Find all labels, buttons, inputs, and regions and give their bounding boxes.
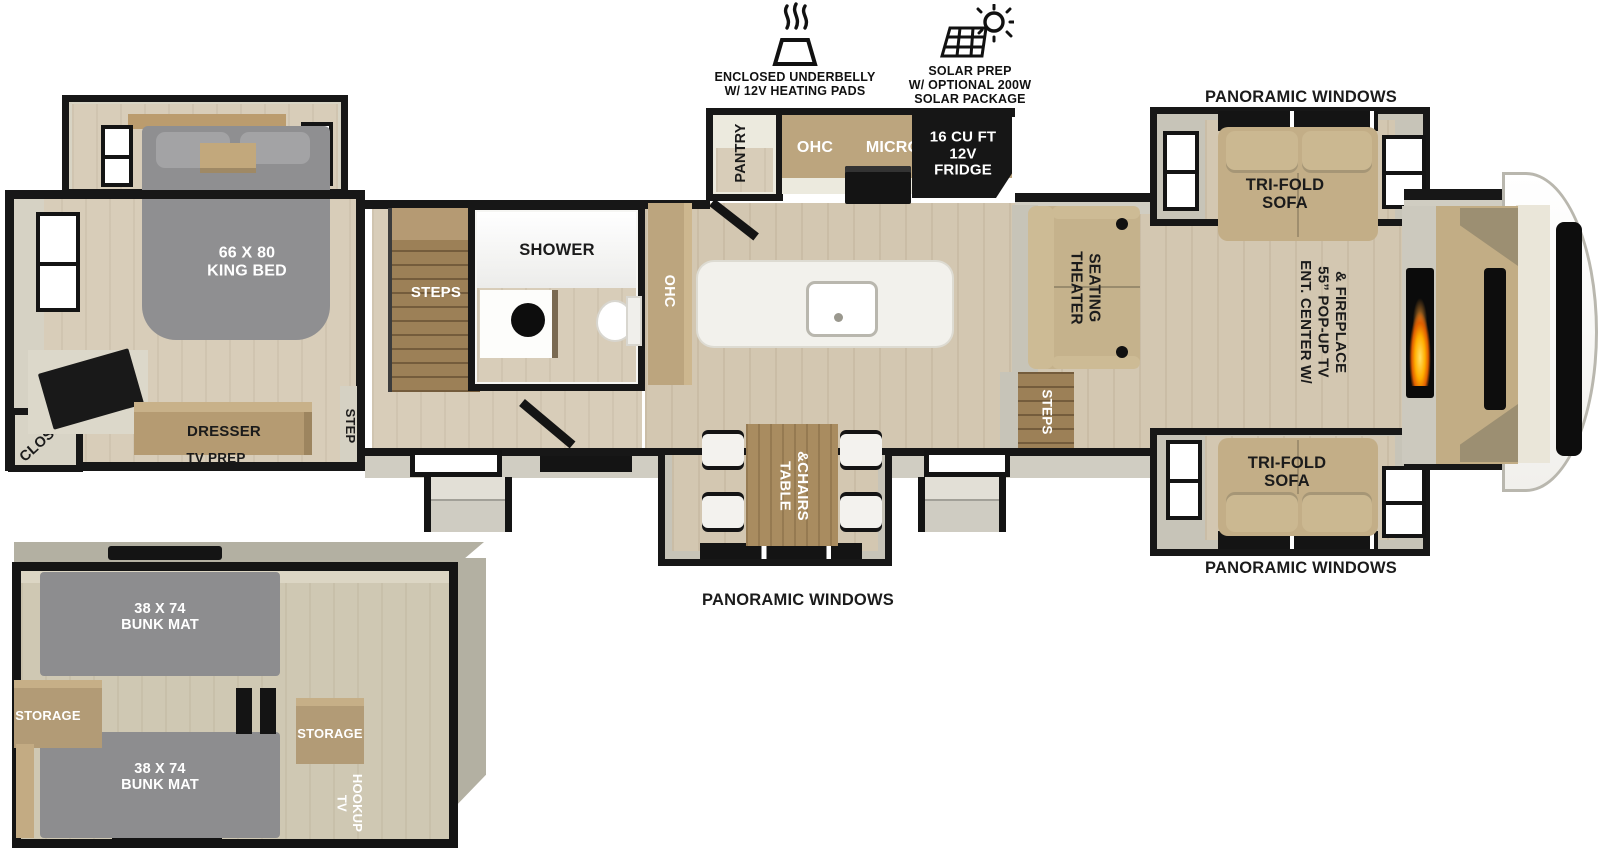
vessel-sink: [511, 303, 545, 337]
solar-prep-icon: [930, 4, 1014, 64]
legend-solar: SOLAR PREP W/ OPTIONAL 200W SOLAR PACKAG…: [880, 64, 1060, 106]
cupholder-icon: [1116, 346, 1128, 358]
dining-chair: [840, 492, 882, 532]
sink-drain: [834, 313, 843, 322]
legend-solar-line2: W/ OPTIONAL 200W: [880, 78, 1060, 92]
bedroom-slide-left-window: [101, 125, 133, 187]
table-chairs-label: TABLE&CHAIRS: [775, 451, 811, 521]
pantry-label: PANTRY: [734, 123, 750, 182]
living-steps-label: STEPS: [1039, 389, 1054, 434]
tv-hookup-label: TVHOOKUP: [333, 774, 365, 832]
passthru-arrow-top: [0, 0, 94, 90]
bunk-mat-bottom-label: 38 X 74BUNK MAT: [121, 762, 199, 794]
front-back-wall: [1516, 205, 1550, 463]
ent-center-label: ENT. CENTER W/55” POP-UP TV& FIREPLACE: [1295, 260, 1349, 384]
sofa-slide-bottom-right-window: [1382, 466, 1426, 538]
theater-seating-label: THEATERSEATING: [1066, 251, 1103, 324]
rv-floorplan: ENCLOSED UNDERBELLY W/ 12V HEATING PADS …: [0, 0, 1600, 865]
dining-chair: [702, 492, 744, 532]
shower-label: SHOWER: [519, 241, 594, 259]
passthru-arrow-top-label: XL TEXAS SIZEPASS THRUSTORAGE: [1059, 110, 1150, 152]
bedroom-left-window: [36, 212, 80, 312]
entry-door-mid: [410, 450, 502, 477]
legend-underbelly-line2: W/ 12V HEATING PADS: [700, 84, 890, 98]
steps-platform: [1000, 372, 1018, 452]
entry-steps-living: [918, 477, 1006, 532]
fireplace-flame-icon: [1409, 284, 1431, 386]
bedroom-top-wall: [5, 190, 365, 199]
dining-chair: [702, 430, 744, 470]
wall-hatch: [540, 456, 632, 472]
passthru-top-wall: [1015, 193, 1155, 202]
king-bed-label: 66 X 80KING BED: [207, 244, 287, 279]
storage-slot: [260, 688, 276, 734]
legend-solar-line1: SOLAR PREP: [880, 64, 1060, 78]
bedroom-step-label: STEP: [343, 409, 357, 444]
island-sink: [806, 281, 878, 337]
storage-left-label: STORAGE: [15, 709, 80, 723]
pop-up-tv: [1484, 268, 1506, 410]
stairs-label: STEPS: [411, 285, 461, 302]
storage-slot: [236, 688, 252, 734]
stairs-landing: [392, 208, 476, 240]
cupholder-icon: [1116, 218, 1128, 230]
dresser-label: DRESSER: [187, 424, 261, 441]
entry-steps-mid: [424, 477, 512, 532]
entry-door-living: [924, 450, 1010, 477]
kitchen-ohc-label: OHC: [797, 139, 833, 157]
legend-underbelly-line1: ENCLOSED UNDERBELLY: [700, 70, 890, 84]
dining-chair: [840, 430, 882, 470]
panoramic-windows-bottom-right-label: PANORAMIC WINDOWS: [1205, 559, 1397, 577]
sofa-slide-top-left-window: [1163, 131, 1199, 211]
panoramic-windows-top-label: PANORAMIC WINDOWS: [1205, 88, 1397, 106]
bunkroom-roof-vent: [108, 546, 222, 560]
bed-shelf: [200, 143, 256, 173]
panoramic-windows-dinette-label: PANORAMIC WINDOWS: [702, 591, 894, 609]
storage-right-label: STORAGE: [297, 727, 362, 741]
bunk-post: [16, 744, 34, 838]
tv-prep-label: TV PREP: [186, 452, 245, 467]
legend-underbelly: ENCLOSED UNDERBELLY W/ 12V HEATING PADS: [700, 70, 890, 98]
range-stove: [845, 166, 911, 204]
heating-pads-icon: [760, 2, 830, 68]
toilet-bowl: [598, 302, 632, 340]
sofa-slide-bottom-left-window: [1166, 440, 1202, 520]
hutch-ohc-label: OHC: [660, 275, 676, 308]
legend-solar-line3: SOLAR PACKAGE: [880, 92, 1060, 106]
tri-fold-sofa-bottom-label: TRI-FOLDSOFA: [1248, 454, 1327, 490]
bunk-mat-top-label: 38 X 74BUNK MAT: [121, 602, 199, 634]
fridge-label: 16 CU FT12VFRIDGE: [930, 129, 997, 179]
toilet-tank: [628, 298, 640, 344]
passthru-arrow-bottom-label: XL TEXAS SIZEPASS THRUSTORAGE: [1057, 516, 1148, 558]
tri-fold-sofa-top-label: TRI-FOLDSOFA: [1246, 176, 1325, 212]
front-window: [1556, 222, 1582, 456]
